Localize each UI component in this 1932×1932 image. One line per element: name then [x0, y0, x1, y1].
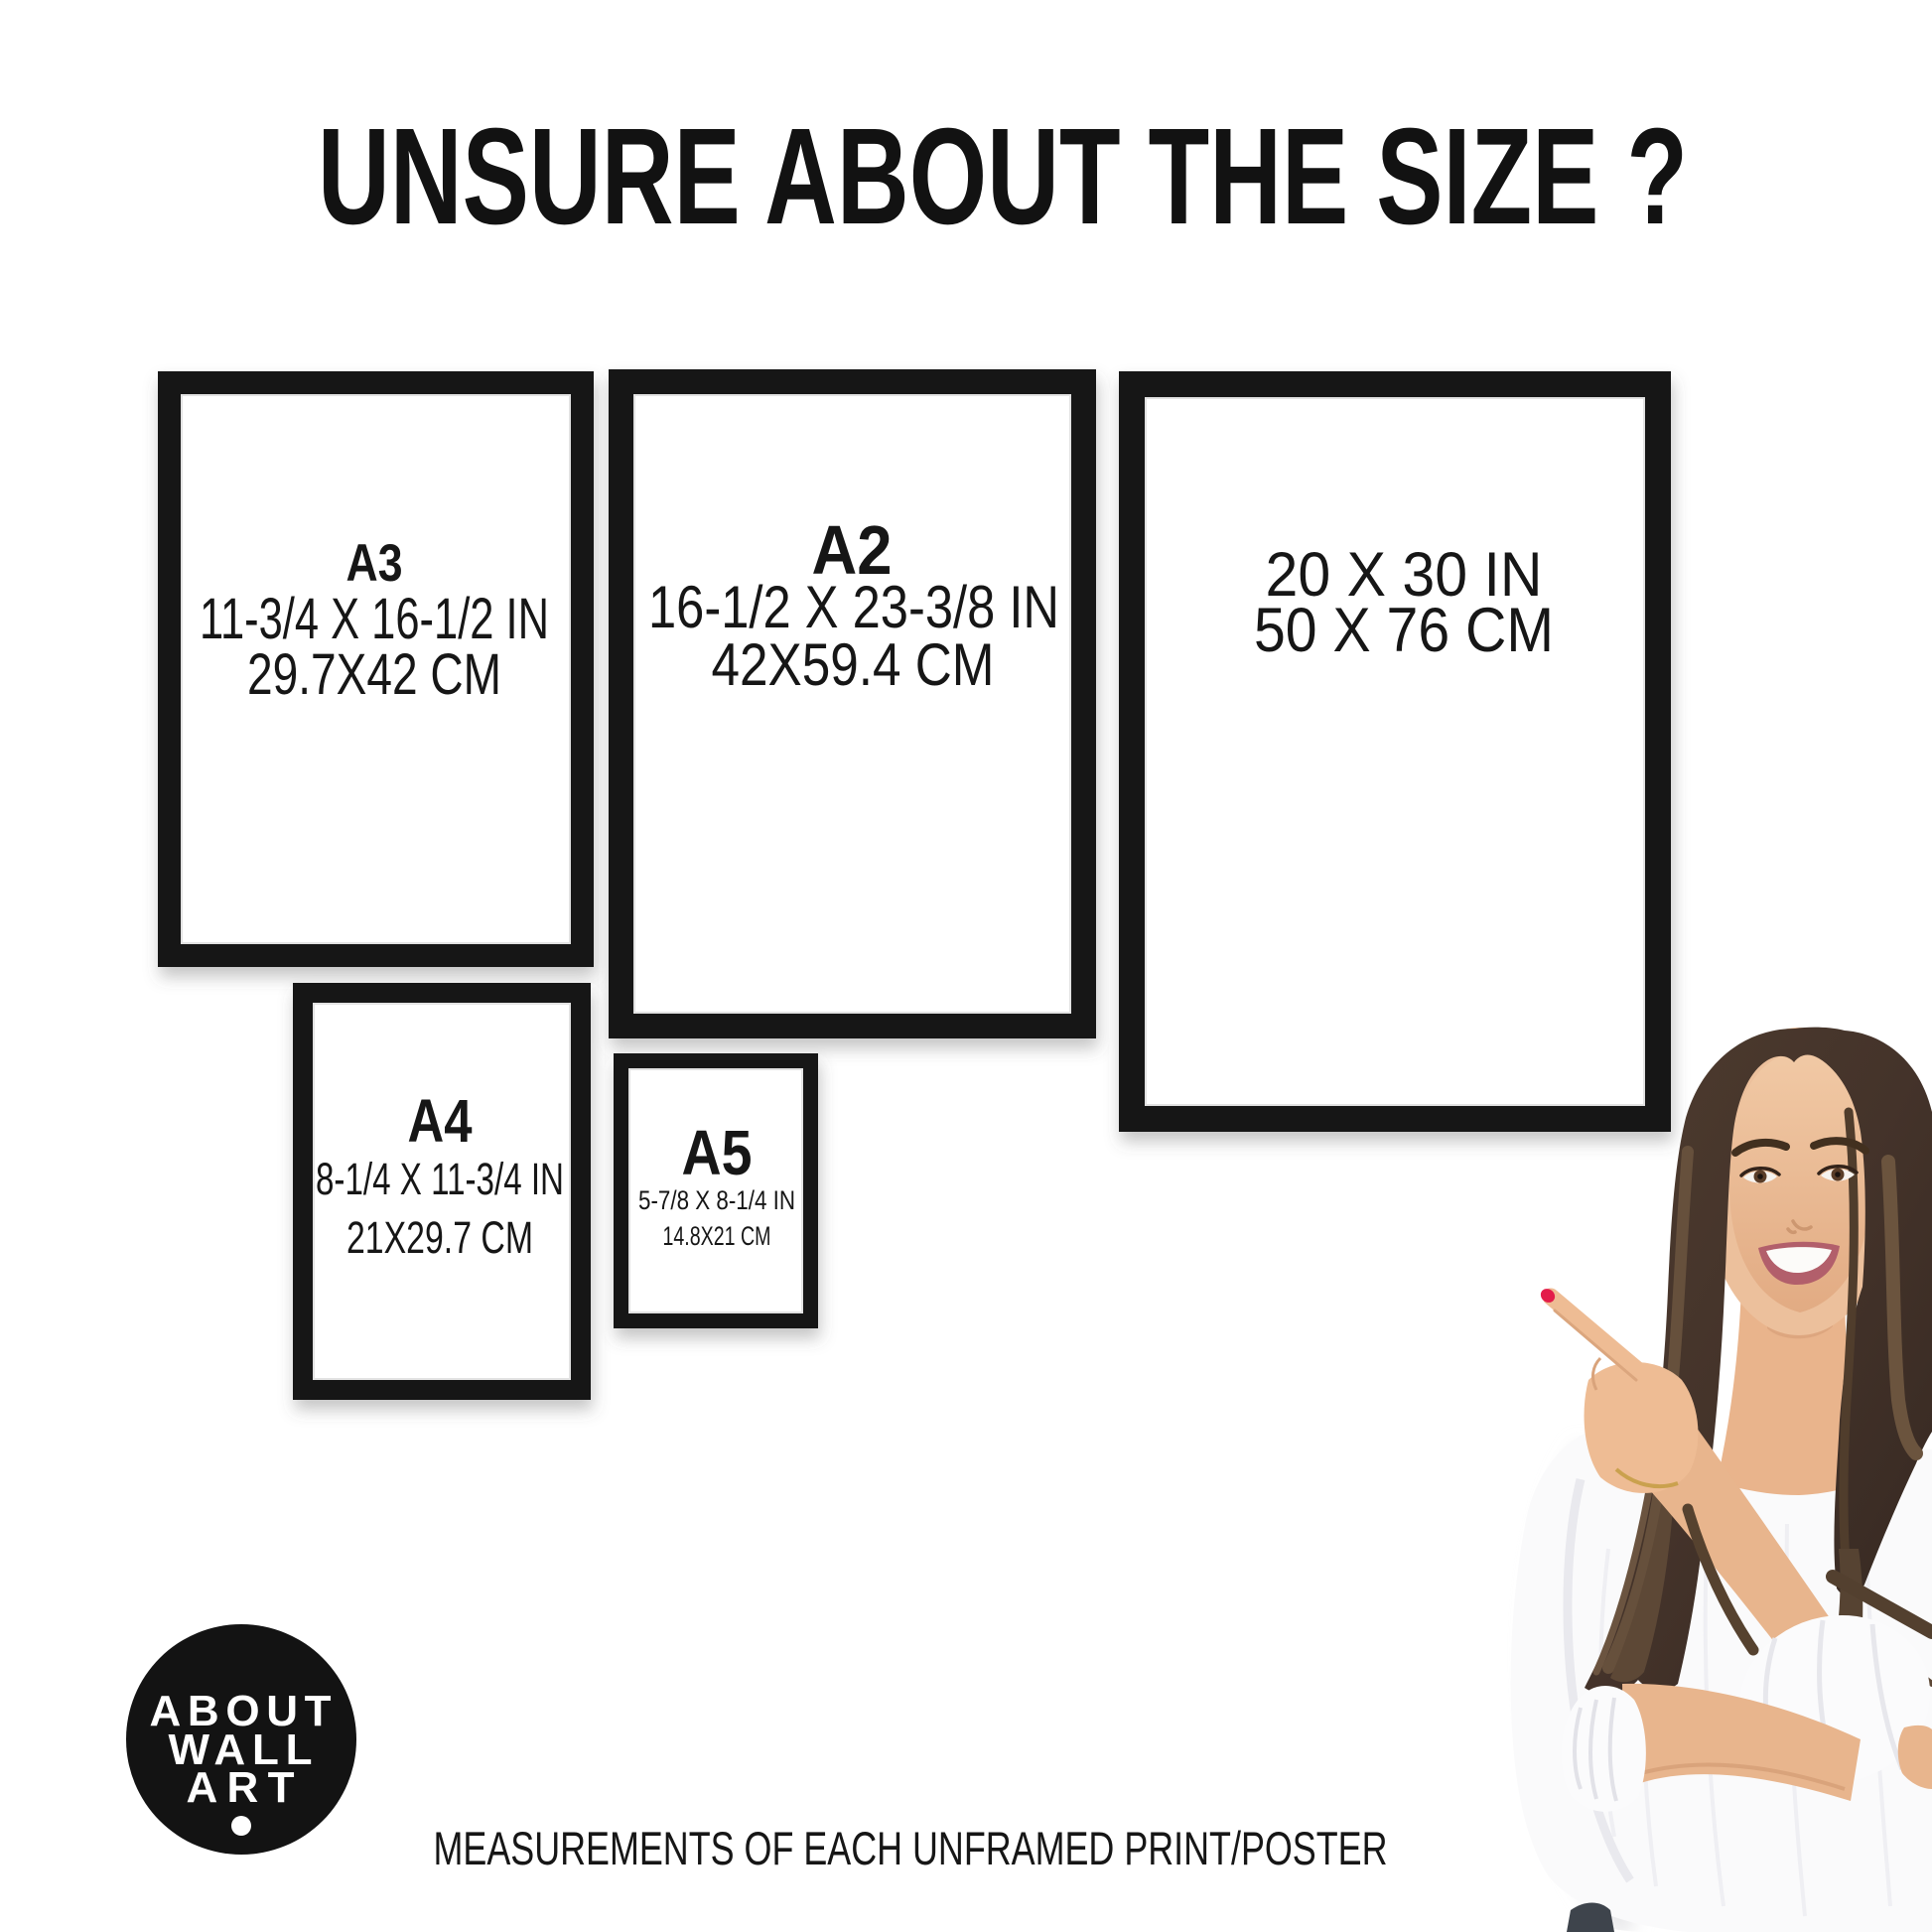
svg-text:UNSURE ABOUT THE SIZE ?: UNSURE ABOUT THE SIZE ?: [318, 100, 1688, 253]
svg-text:8-1/4 X 11-3/4 IN: 8-1/4 X 11-3/4 IN: [316, 1154, 564, 1204]
svg-text:A5: A5: [682, 1117, 753, 1188]
svg-text:16-1/2 X 23-3/8 IN: 16-1/2 X 23-3/8 IN: [648, 574, 1059, 640]
svg-text:29.7X42 CM: 29.7X42 CM: [247, 642, 501, 707]
svg-text:14.8X21 CM: 14.8X21 CM: [663, 1221, 771, 1251]
svg-text:ART: ART: [187, 1763, 295, 1812]
svg-text:21X29.7 CM: 21X29.7 CM: [346, 1212, 533, 1263]
svg-text:42X59.4 CM: 42X59.4 CM: [712, 631, 995, 698]
svg-text:5-7/8 X 8-1/4 IN: 5-7/8 X 8-1/4 IN: [638, 1185, 795, 1215]
svg-text:MEASUREMENTS OF EACH UNFRAMED: MEASUREMENTS OF EACH UNFRAMED PRINT/POST…: [434, 1822, 1388, 1874]
svg-text:50 X 76 CM: 50 X 76 CM: [1254, 596, 1554, 665]
svg-text:A4: A4: [408, 1087, 473, 1155]
svg-text:A3: A3: [346, 534, 403, 593]
